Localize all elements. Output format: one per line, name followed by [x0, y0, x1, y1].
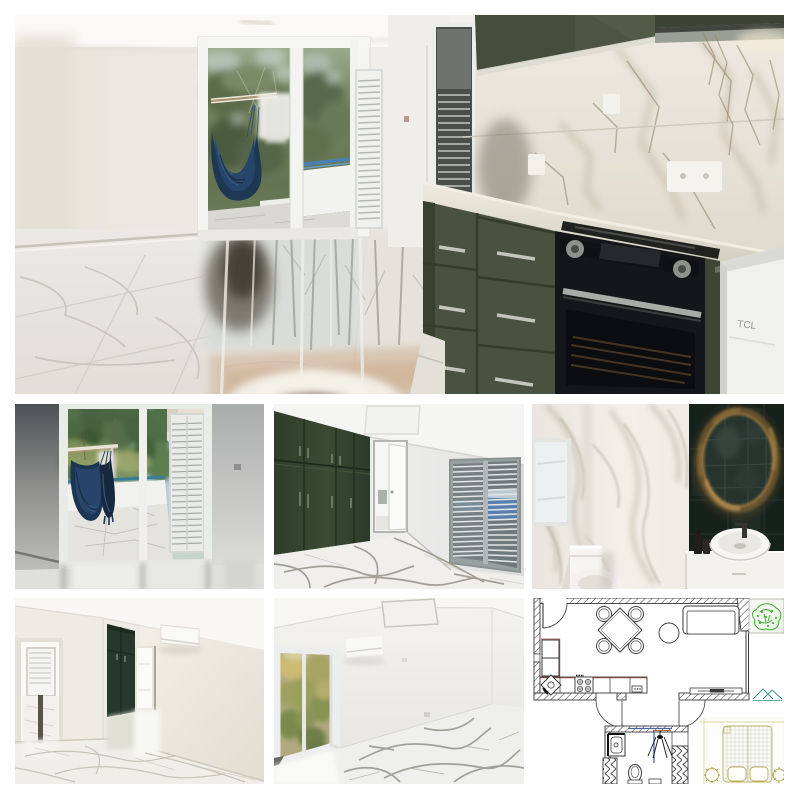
- svg-text:TCL: TCL: [737, 319, 757, 332]
